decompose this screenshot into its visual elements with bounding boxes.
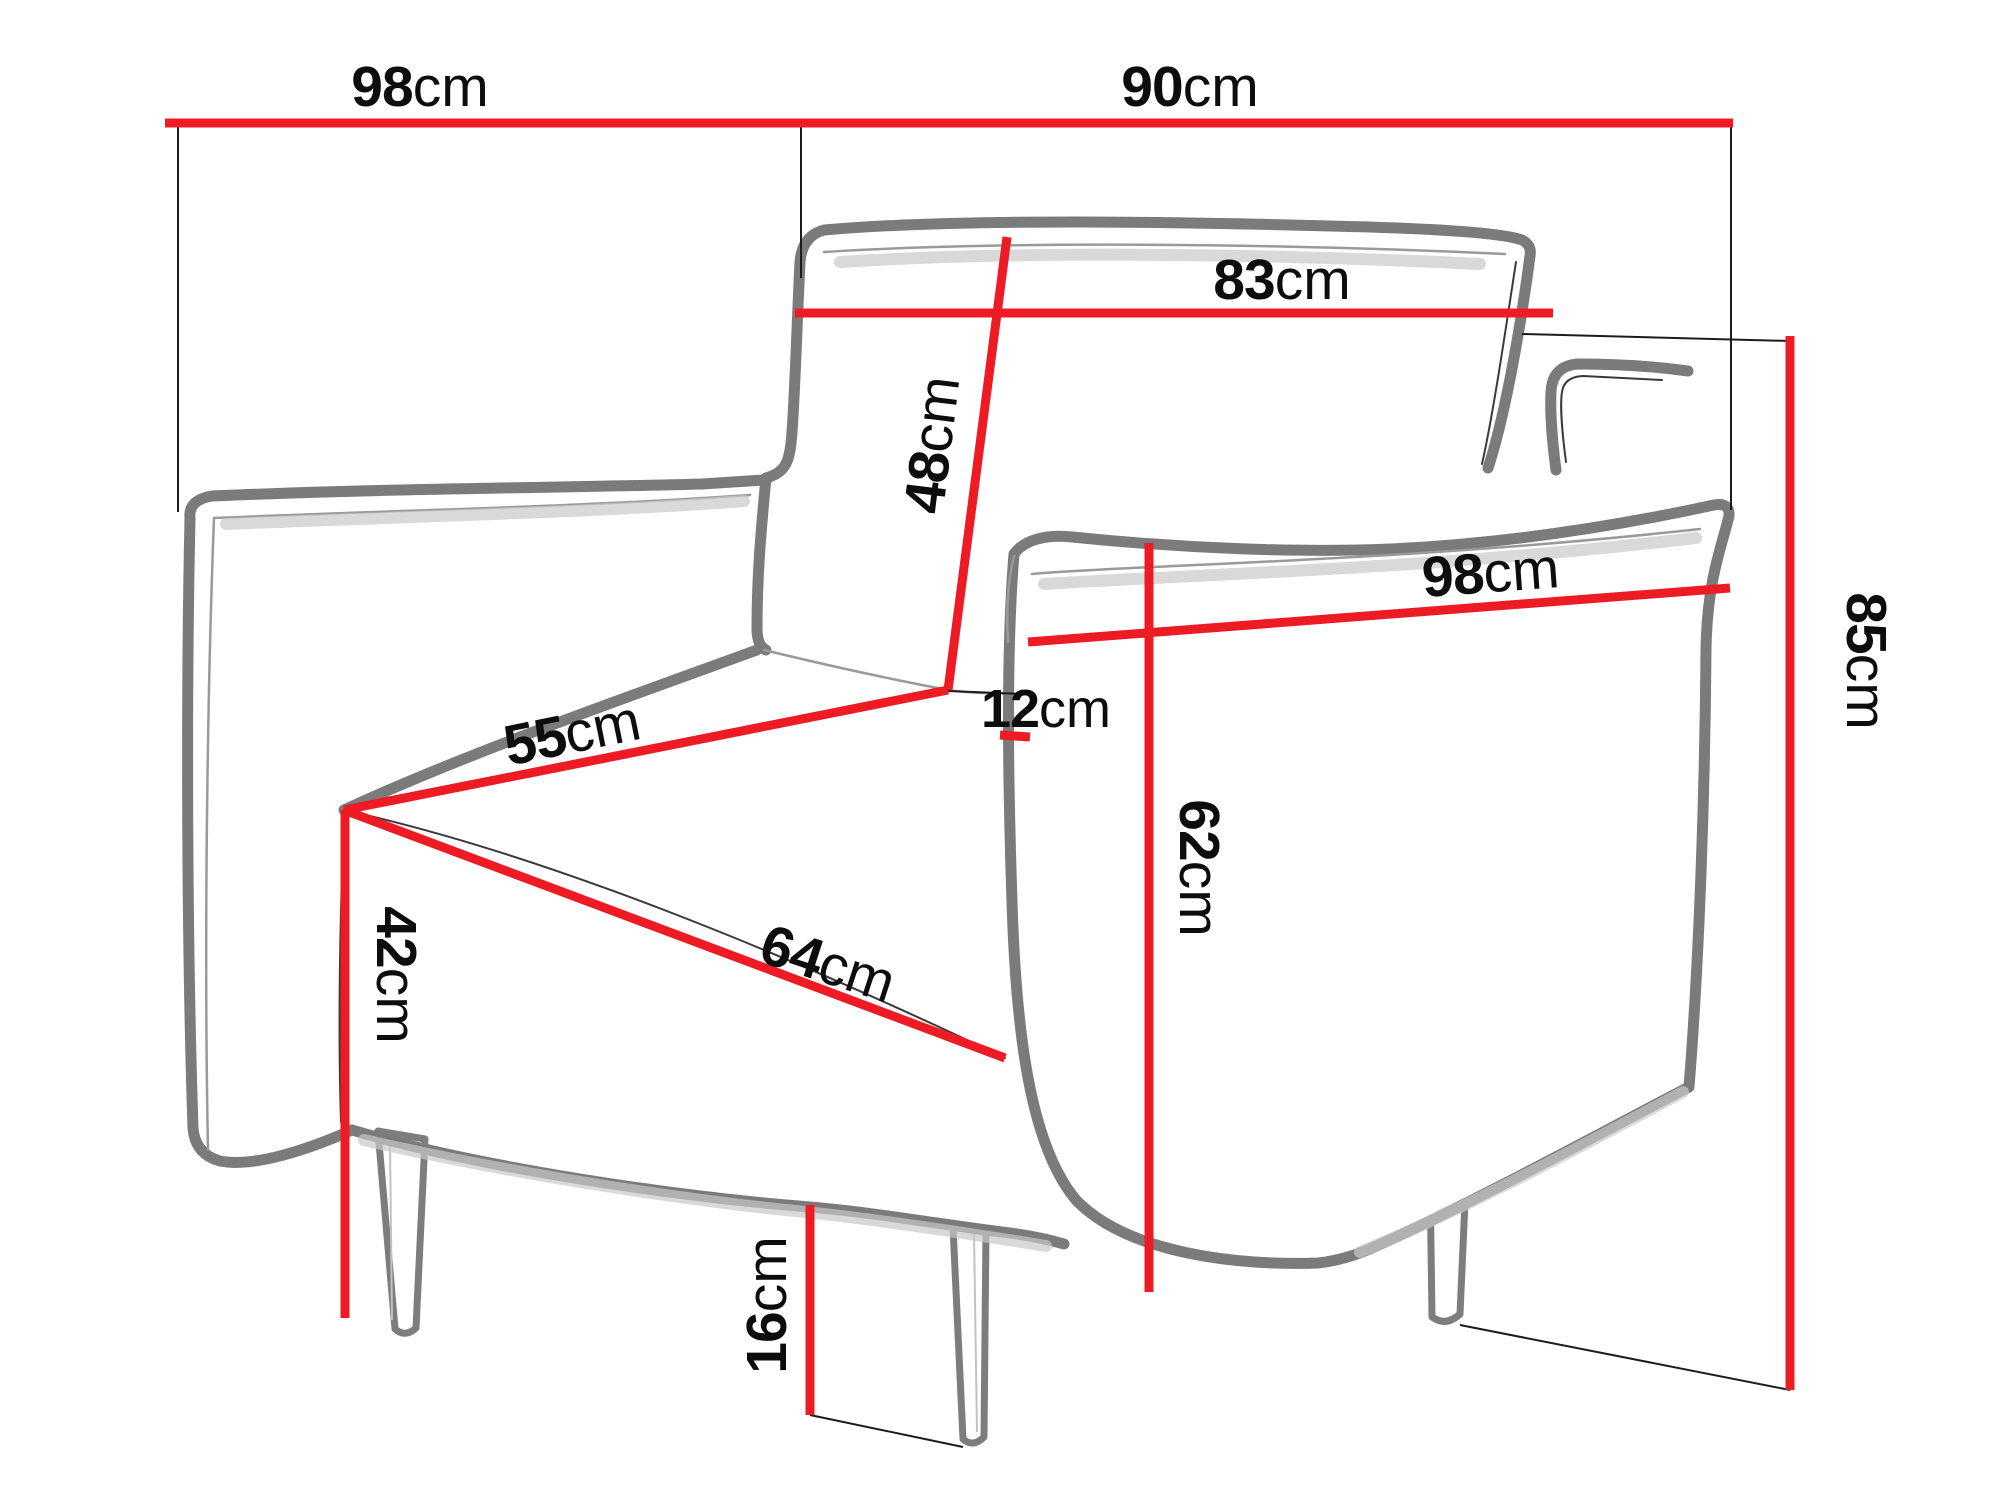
dim-label-seat-height: 42cm <box>364 906 428 1043</box>
left-panel-front-seam <box>206 518 214 1150</box>
dim-label-armrest-height: 62cm <box>1167 799 1231 936</box>
dim-label-armrest-length: 98cm <box>1420 536 1562 610</box>
back-panel-edge <box>1551 364 1688 470</box>
leg-floor-ref <box>810 1415 963 1447</box>
dim-label-armrest-thickness: 12cm <box>981 679 1111 739</box>
front-right-leg <box>953 1227 986 1443</box>
front-left-leg <box>378 1131 425 1333</box>
armchair-dimension-diagram: 98cm 90cm 83cm 48cm 98cm 85cm 55cm 12cm … <box>0 0 2000 1500</box>
left-panel-front-bottom-edge <box>188 518 352 1162</box>
back-panel-inner-seam <box>1561 376 1662 462</box>
dim-label-seat-width: 64cm <box>753 912 903 1015</box>
left-panel-shadow <box>226 501 744 524</box>
height-ref-top <box>1522 334 1790 341</box>
dim-label-leg-height: 16cm <box>735 1236 799 1373</box>
dim-label-backrest-height: 48cm <box>892 373 972 517</box>
dim-label-seat-depth: 55cm <box>499 688 646 778</box>
diagram-canvas: 98cm 90cm 83cm 48cm 98cm 85cm 55cm 12cm … <box>0 0 2000 1500</box>
dim-line-seat-width <box>344 810 1005 1058</box>
dim-label-backrest-width: 83cm <box>1213 248 1350 312</box>
backrest-lower-left-edge <box>757 478 766 650</box>
dim-line-seat-depth <box>344 690 948 810</box>
dim-label-back-width: 98cm <box>351 55 488 119</box>
height-ref-bottom <box>1460 1325 1790 1390</box>
backrest-left-edge <box>766 262 800 478</box>
dim-label-total-height: 85cm <box>1834 592 1898 729</box>
dim-label-side-depth: 90cm <box>1121 55 1258 119</box>
backrest-shadow <box>840 255 1480 264</box>
